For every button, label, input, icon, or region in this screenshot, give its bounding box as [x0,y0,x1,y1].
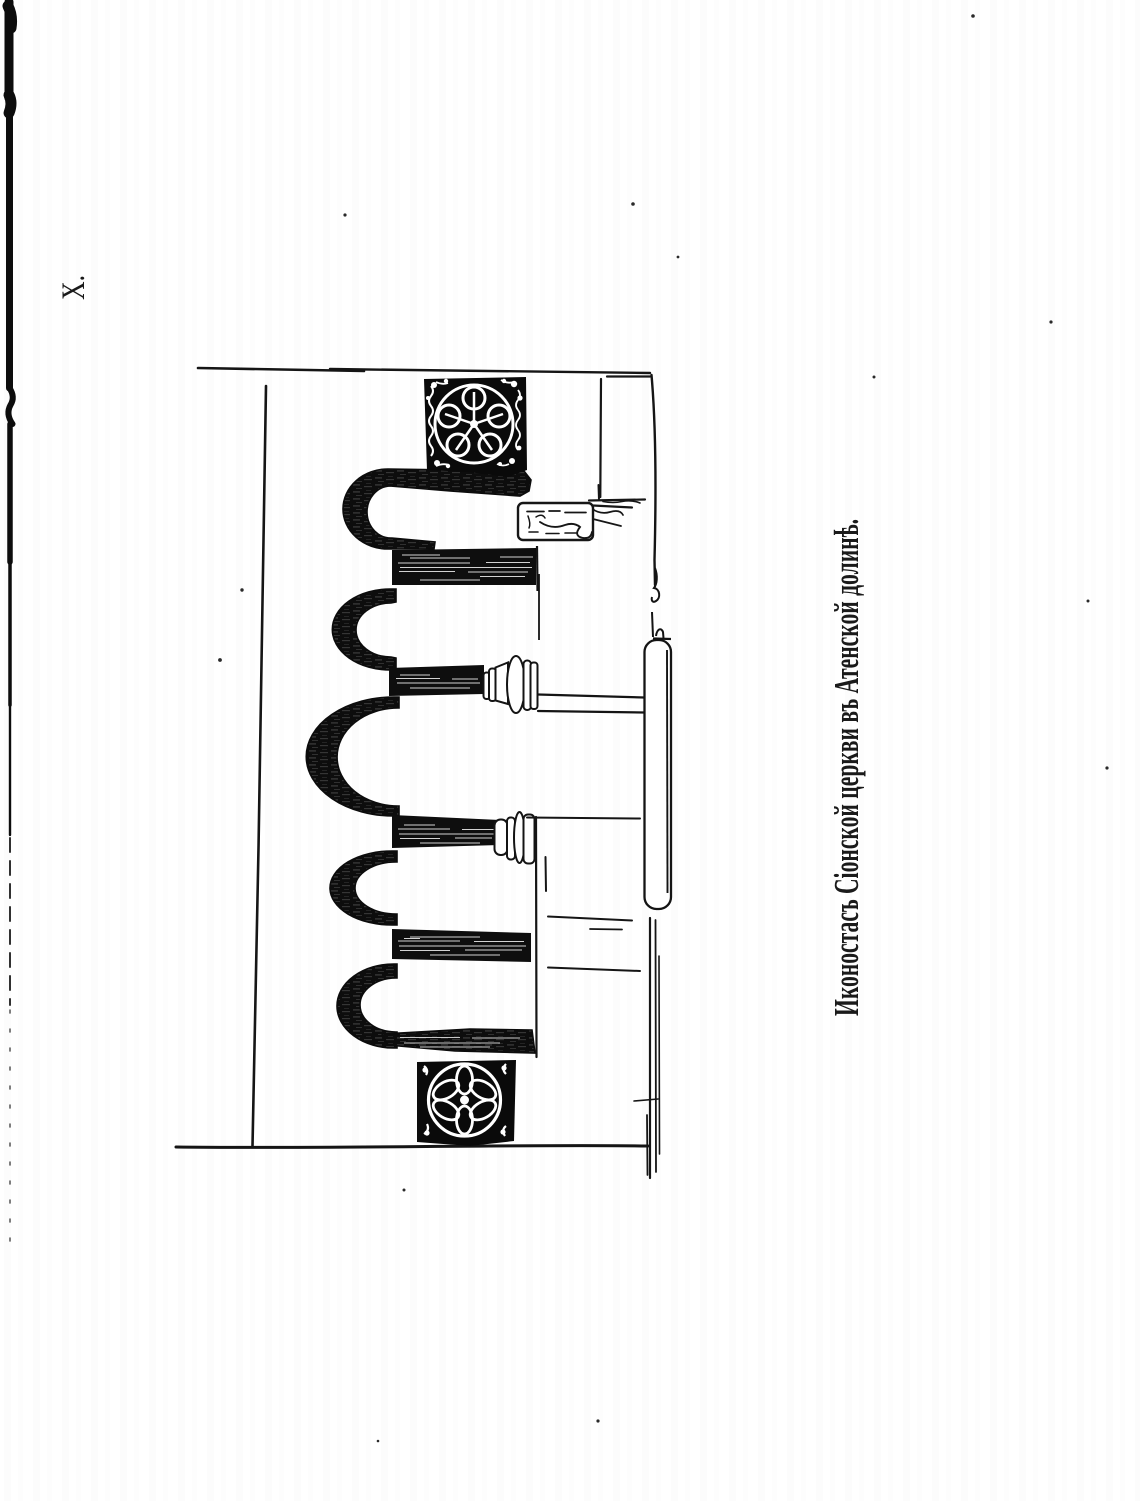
svg-text:Иконостасъ Сіонской церкви въ: Иконостасъ Сіонской церкви въ Атенской д… [827,519,866,1016]
svg-text:X.: X. [56,275,92,300]
